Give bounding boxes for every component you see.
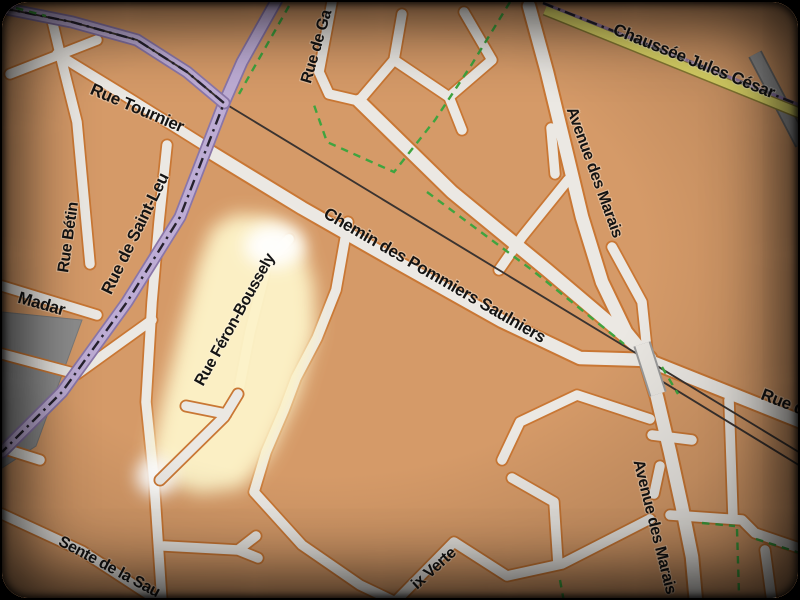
map-svg: Rue Tournier Rue Bétin Rue de Saint-Leu …: [2, 2, 798, 598]
map-canvas[interactable]: Rue Tournier Rue Bétin Rue de Saint-Leu …: [2, 2, 798, 598]
map-viewport[interactable]: Rue Tournier Rue Bétin Rue de Saint-Leu …: [0, 0, 800, 600]
